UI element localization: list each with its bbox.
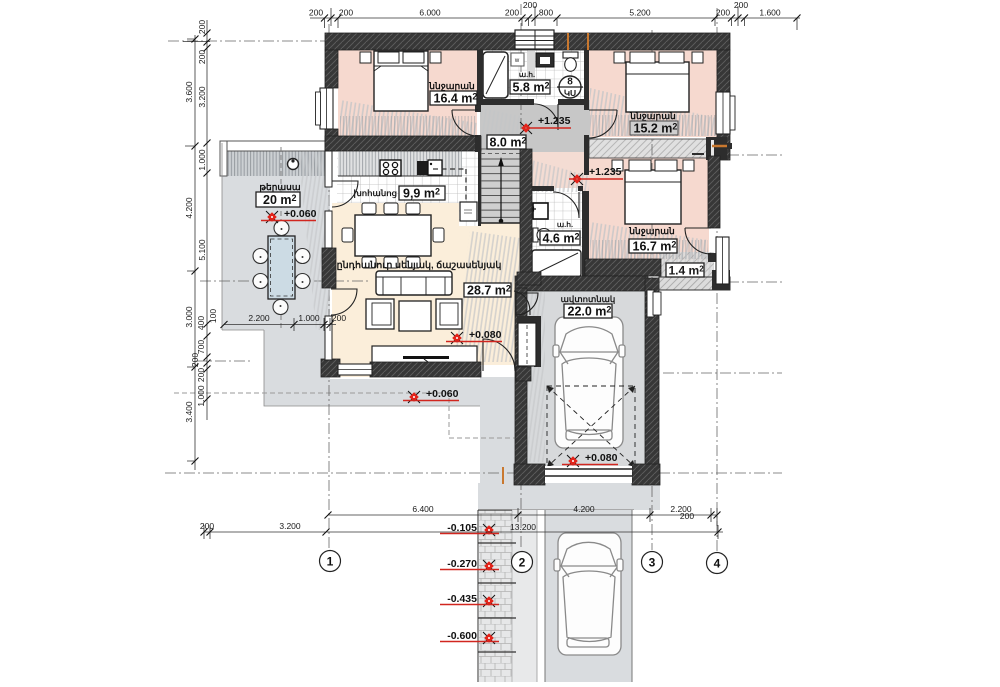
svg-text:խոհանոց: խոհանոց [353, 187, 397, 199]
svg-text:6.000: 6.000 [419, 8, 441, 18]
svg-text:+1.235: +1.235 [538, 115, 571, 127]
svg-text:1: 1 [327, 555, 334, 569]
svg-text:1.4 m2: 1.4 m2 [669, 264, 705, 278]
svg-text:-0.600: -0.600 [447, 630, 477, 642]
svg-text:+0.060: +0.060 [426, 388, 459, 400]
svg-text:5.200: 5.200 [629, 8, 651, 18]
svg-text:3.000: 3.000 [184, 306, 194, 328]
svg-text:5.8 m2: 5.8 m2 [513, 81, 550, 95]
svg-text:3.200: 3.200 [197, 86, 207, 108]
svg-text:200: 200 [716, 8, 730, 18]
svg-text:8.0 m2: 8.0 m2 [490, 136, 527, 150]
svg-text:1.000: 1.000 [298, 313, 320, 323]
svg-text:200: 200 [190, 353, 200, 367]
svg-text:2: 2 [519, 556, 526, 570]
svg-text:3.600: 3.600 [184, 81, 194, 103]
svg-text:16.7 m2: 16.7 m2 [633, 240, 677, 254]
svg-text:200: 200 [332, 313, 346, 323]
svg-text:ա.հ.: ա.հ. [557, 219, 573, 229]
svg-text:4.200: 4.200 [184, 197, 194, 219]
svg-text:200: 200 [309, 8, 323, 18]
svg-text:200: 200 [523, 0, 537, 10]
svg-text:800: 800 [539, 8, 553, 18]
svg-text:ննջարան: ննջարան [629, 111, 676, 122]
svg-text:1.000: 1.000 [197, 149, 207, 171]
svg-text:3.200: 3.200 [279, 521, 301, 531]
svg-text:6.400: 6.400 [412, 504, 434, 514]
svg-text:200: 200 [196, 368, 206, 382]
svg-text:+1.235: +1.235 [589, 166, 622, 178]
svg-text:-0.270: -0.270 [447, 558, 477, 570]
svg-text:28.7 m2: 28.7 m2 [467, 284, 511, 298]
svg-text:ընդհանուր սենյակ, ճաշասենյակ: ընդհանուր սենյակ, ճաշասենյակ [337, 259, 502, 271]
svg-text:200: 200 [339, 8, 353, 18]
svg-text:ննջարան: ննջարան [628, 226, 675, 237]
svg-text:ԿU: ԿU [564, 88, 576, 98]
svg-text:4.200: 4.200 [573, 504, 595, 514]
svg-text:5.100: 5.100 [197, 239, 207, 261]
svg-text:9,9 m2: 9,9 m2 [403, 187, 440, 201]
svg-text:200: 200 [197, 20, 207, 34]
svg-text:+0.080: +0.080 [469, 329, 502, 341]
svg-text:1.600: 1.600 [759, 8, 781, 18]
svg-text:15.2 m2: 15.2 m2 [634, 122, 678, 136]
svg-text:w: w [514, 58, 520, 64]
svg-text:4.6 m2: 4.6 m2 [543, 232, 580, 246]
svg-text:13.200: 13.200 [510, 522, 536, 532]
svg-text:200: 200 [197, 50, 207, 64]
svg-text:3: 3 [649, 556, 656, 570]
svg-text:4: 4 [714, 557, 721, 571]
svg-text:16.4 m2: 16.4 m2 [434, 92, 478, 106]
svg-text:200: 200 [200, 521, 214, 531]
svg-text:2.200: 2.200 [248, 313, 270, 323]
svg-text:ա.հ.: ա.հ. [519, 69, 535, 79]
svg-text:400: 400 [196, 316, 206, 330]
svg-text:700: 700 [196, 340, 206, 354]
svg-text:100: 100 [208, 309, 218, 323]
svg-text:-0.435: -0.435 [447, 593, 477, 605]
svg-text:200: 200 [505, 8, 519, 18]
svg-text:+0.060: +0.060 [284, 208, 317, 220]
svg-text:+0.080: +0.080 [585, 452, 618, 464]
svg-text:1.000: 1.000 [196, 385, 206, 407]
svg-text:8: 8 [567, 77, 573, 88]
svg-text:3.400: 3.400 [184, 401, 194, 423]
svg-text:200: 200 [680, 511, 694, 521]
svg-text:20 m2: 20 m2 [263, 193, 297, 207]
svg-text:ննջարան: ննջարան [428, 81, 475, 92]
svg-text:200: 200 [734, 0, 748, 10]
svg-text:22.0 m2: 22.0 m2 [568, 305, 612, 319]
